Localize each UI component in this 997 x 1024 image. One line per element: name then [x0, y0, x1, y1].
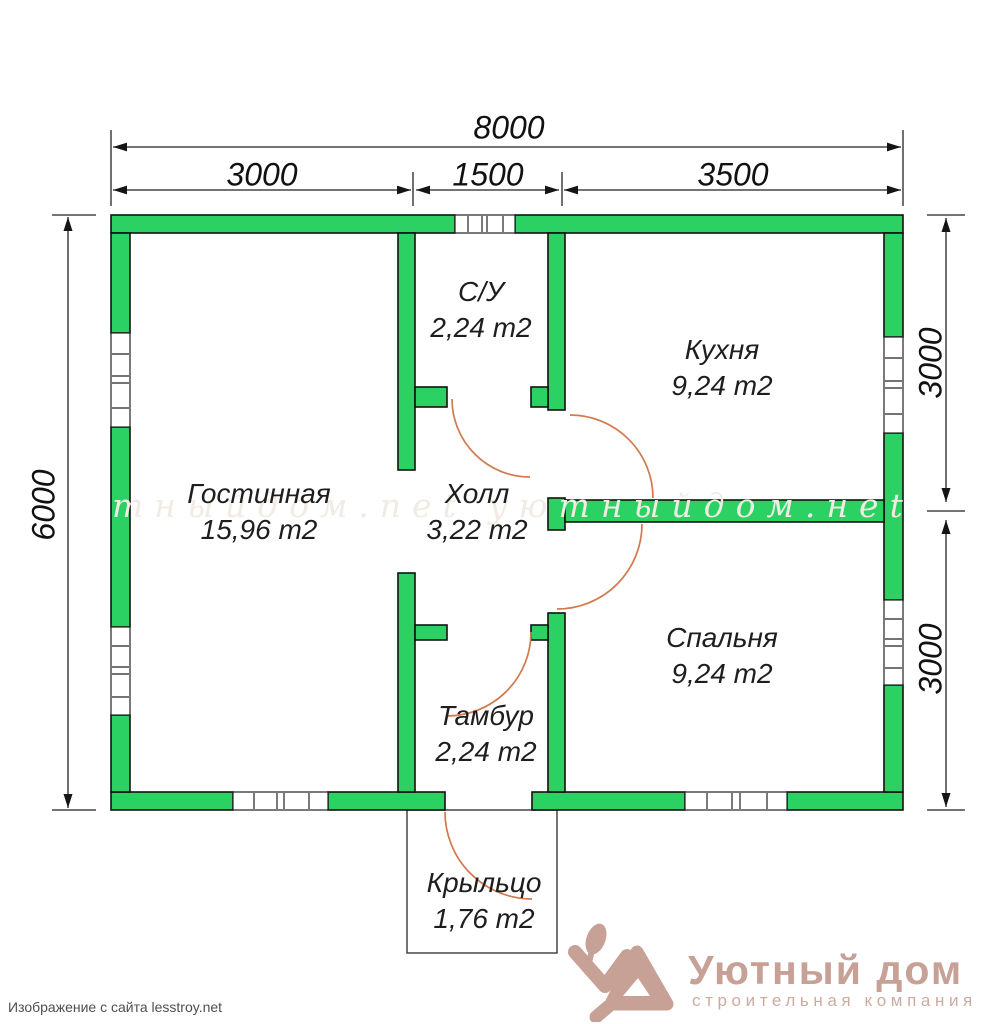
wall-kitchen-bedroom-jamb — [548, 498, 565, 530]
company-logo-icon — [553, 922, 693, 1022]
wall-left-1 — [111, 233, 130, 333]
room-label-bedroom: Спальня 9,24 m2 — [666, 620, 778, 692]
room-area: 2,24 m2 — [435, 734, 536, 770]
room-label-hall: Холл 3,22 m2 — [426, 476, 527, 548]
wall-su-door-jamb-left — [415, 387, 447, 407]
wall-kitchen-bedroom-divider — [565, 500, 884, 522]
wall-tambour-right — [548, 613, 565, 792]
room-area: 15,96 m2 — [187, 512, 330, 548]
wall-bottom-2 — [328, 792, 445, 810]
room-name: Гостинная — [187, 476, 330, 512]
dim-right-lower: 3000 — [913, 623, 950, 694]
room-area: 9,24 m2 — [671, 368, 772, 404]
company-logo-subtitle: строительная компания — [692, 991, 977, 1011]
window-right-2 — [884, 600, 903, 685]
dim-right-upper: 3000 — [913, 327, 950, 398]
wall-tambour-door-jamb-right — [531, 625, 548, 640]
room-area: 1,76 m2 — [427, 901, 542, 937]
image-credit: Изображение с сайта lesstroy.net — [8, 999, 222, 1015]
wall-top-left — [111, 215, 455, 233]
dim-segment-3000: 3000 — [226, 157, 297, 194]
wall-bottom-1 — [111, 792, 233, 810]
door-arc-su — [452, 399, 530, 477]
room-label-porch: Крыльцо 1,76 m2 — [427, 865, 542, 937]
room-area: 2,24 m2 — [430, 310, 531, 346]
door-arc-kitchen — [570, 415, 653, 498]
floor-plan-page: тныйдом.net уютныйдом.нet 8000 3000 1500… — [0, 0, 997, 1024]
wall-top-right — [515, 215, 903, 233]
room-name: Крыльцо — [427, 865, 542, 901]
wall-left-3 — [111, 715, 130, 792]
room-name: Холл — [426, 476, 527, 512]
dim-total-width: 8000 — [473, 110, 544, 147]
wall-tambour-left — [398, 573, 415, 792]
window-bottom-right — [685, 792, 787, 810]
window-right-1 — [884, 337, 903, 433]
wall-right-2 — [884, 433, 903, 600]
room-label-livingroom: Гостинная 15,96 m2 — [187, 476, 330, 548]
wall-bottom-3 — [532, 792, 685, 810]
room-label-tambour: Тамбур 2,24 m2 — [435, 698, 536, 770]
wall-livingroom-divider — [398, 233, 415, 470]
room-name: Кухня — [671, 332, 772, 368]
wall-su-door-jamb-right — [531, 387, 548, 407]
window-top — [455, 215, 515, 233]
wall-right-3 — [884, 685, 903, 792]
room-label-kitchen: Кухня 9,24 m2 — [671, 332, 772, 404]
wall-tambour-door-jamb-left — [415, 625, 447, 640]
room-area: 9,24 m2 — [666, 656, 778, 692]
wall-left-2 — [111, 427, 130, 627]
room-label-su: С/У 2,24 m2 — [430, 274, 531, 346]
wall-su-kitchen-divider — [548, 233, 565, 410]
room-name: С/У — [430, 274, 531, 310]
dim-left-height: 6000 — [26, 469, 63, 540]
dim-segment-3500: 3500 — [697, 157, 768, 194]
room-name: Спальня — [666, 620, 778, 656]
door-arc-bedroom — [557, 524, 642, 609]
room-area: 3,22 m2 — [426, 512, 527, 548]
window-bottom-left — [233, 792, 328, 810]
dim-segment-1500: 1500 — [452, 157, 523, 194]
room-name: Тамбур — [435, 698, 536, 734]
company-logo-title: Уютный дом — [688, 947, 963, 994]
wall-bottom-4 — [787, 792, 903, 810]
window-left-2 — [111, 627, 130, 715]
wall-right-1 — [884, 233, 903, 337]
window-left-1 — [111, 333, 130, 427]
